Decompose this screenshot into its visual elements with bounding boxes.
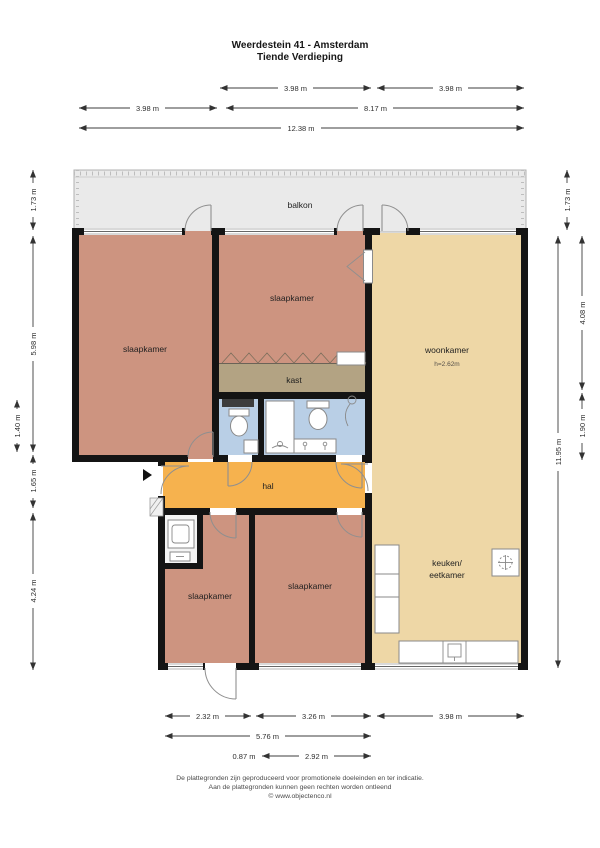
- window: [225, 228, 334, 235]
- wall: [158, 508, 210, 515]
- dimension: 3.98 m: [220, 83, 371, 93]
- svg-text:1.73 m: 1.73 m: [563, 189, 572, 212]
- svg-text:3.98 m: 3.98 m: [136, 104, 159, 113]
- wall: [197, 515, 203, 567]
- window: [420, 228, 516, 235]
- svg-text:1.40 m: 1.40 m: [13, 415, 22, 438]
- dimension: 3.98 m: [377, 711, 524, 721]
- dimension: 1.40 m: [12, 400, 22, 452]
- svg-text:1.73 m: 1.73 m: [29, 189, 38, 212]
- window: [259, 663, 361, 670]
- dimension: 3.26 m: [256, 711, 371, 721]
- dimension: 11.95 m: [553, 236, 563, 668]
- svg-text:3.26 m: 3.26 m: [302, 712, 325, 721]
- wall: [258, 399, 264, 455]
- svg-text:12.38 m: 12.38 m: [287, 124, 314, 133]
- wall: [158, 496, 165, 670]
- svg-text:0.87 m: 0.87 m: [233, 752, 256, 761]
- wall: [365, 283, 372, 463]
- title-line1: Weerdestein 41 - Amsterdam: [232, 40, 369, 51]
- bedroom-label: slaapkamer: [288, 581, 332, 591]
- wall: [362, 455, 372, 462]
- svg-text:11.95 m: 11.95 m: [554, 439, 563, 466]
- dimension: 2.92 m: [262, 751, 371, 761]
- floorplan-canvas: Weerdestein 41 - Amsterdam Tiende Verdie…: [0, 0, 600, 848]
- svg-text:1.90 m: 1.90 m: [578, 415, 587, 438]
- dimension: 1.65 m: [28, 455, 38, 508]
- dimension: 0.87 m: [227, 751, 261, 761]
- svg-text:1.65 m: 1.65 m: [29, 470, 38, 493]
- washer-icon: [168, 520, 194, 561]
- wall: [362, 508, 372, 515]
- wall: [72, 228, 79, 462]
- svg-text:5.76 m: 5.76 m: [256, 732, 279, 741]
- svg-text:4.24 m: 4.24 m: [29, 580, 38, 603]
- wall: [165, 563, 203, 569]
- window: [168, 663, 203, 670]
- dimension: 3.98 m: [377, 83, 524, 93]
- bedroom-label: slaapkamer: [270, 293, 314, 303]
- wall: [72, 455, 165, 462]
- wall: [158, 455, 165, 466]
- toilet-icon: [307, 401, 329, 430]
- wall: [236, 508, 337, 515]
- kitchen-label: keuken/: [432, 558, 462, 568]
- wall: [249, 515, 255, 663]
- dimension: 2.32 m: [165, 711, 251, 721]
- ceiling-height-label: h=2.62m: [434, 361, 459, 368]
- footer-line2: Aan de plattegronden kunnen geen rechten…: [209, 784, 392, 791]
- wall: [213, 455, 228, 462]
- hand-basin-icon: [244, 440, 258, 453]
- dimension: 8.17 m: [226, 103, 524, 113]
- svg-text:5.98 m: 5.98 m: [29, 333, 38, 356]
- wall: [165, 455, 188, 462]
- svg-text:2.92 m: 2.92 m: [305, 752, 328, 761]
- dimension: 1.73 m: [28, 170, 38, 230]
- dimension: 1.90 m: [577, 393, 587, 460]
- svg-text:8.17 m: 8.17 m: [364, 104, 387, 113]
- footer-line1: De plattegronden zijn geproduceerd voor …: [176, 775, 424, 782]
- wall: [365, 231, 372, 250]
- facade-door: [205, 668, 236, 699]
- svg-text:3.98 m: 3.98 m: [439, 712, 462, 721]
- window: [84, 228, 182, 235]
- hall-label: hal: [262, 481, 273, 491]
- wall: [365, 493, 372, 663]
- ventilation-unit-icon: [492, 549, 519, 576]
- dimension: 4.08 m: [577, 236, 587, 390]
- footer-line3: © www.objectenco.nl: [268, 792, 332, 800]
- title-line2: Tiende Verdieping: [257, 52, 343, 63]
- wall: [212, 392, 372, 399]
- meter-closet-door: [150, 498, 163, 516]
- dimension: 5.76 m: [165, 731, 371, 741]
- wall: [521, 228, 528, 670]
- closet-label: kast: [286, 375, 302, 385]
- bedroom-label: slaapkamer: [188, 591, 232, 601]
- dimension: 12.38 m: [79, 123, 524, 133]
- living-label: woonkamer: [424, 345, 469, 355]
- duct-shaft: [222, 399, 254, 407]
- dimension: 4.24 m: [28, 513, 38, 670]
- svg-text:3.98 m: 3.98 m: [284, 84, 307, 93]
- boiler-cabinet: [337, 352, 365, 365]
- dimension: 5.98 m: [28, 236, 38, 452]
- toilet-icon: [229, 409, 249, 436]
- page-title: Weerdestein 41 - Amsterdam Tiende Verdie…: [232, 40, 369, 63]
- svg-text:4.08 m: 4.08 m: [578, 302, 587, 325]
- kitchen-label: eetkamer: [429, 570, 465, 580]
- shower-icon: [266, 401, 294, 453]
- entrance-arrow-icon: [143, 469, 152, 481]
- dimension: 3.98 m: [79, 103, 217, 113]
- svg-text:3.98 m: 3.98 m: [439, 84, 462, 93]
- svg-text:2.32 m: 2.32 m: [196, 712, 219, 721]
- footer-disclaimer: De plattegronden zijn geproduceerd voor …: [176, 775, 424, 800]
- bedroom-label: slaapkamer: [123, 344, 167, 354]
- vanity-icon: [294, 439, 336, 453]
- balcony-label: balkon: [287, 200, 312, 210]
- wall: [252, 455, 336, 462]
- wall: [212, 231, 219, 455]
- window: [375, 663, 518, 670]
- dimension: 1.73 m: [562, 170, 572, 230]
